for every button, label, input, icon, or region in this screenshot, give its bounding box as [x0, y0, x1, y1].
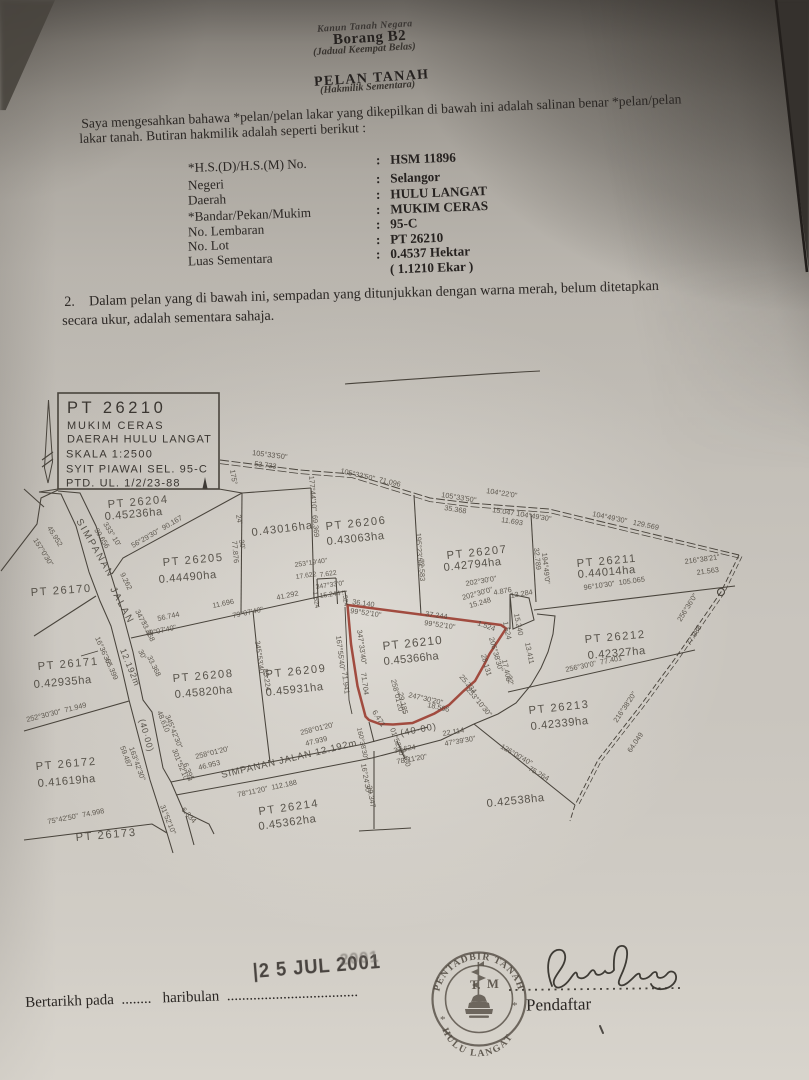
svg-text:M: M: [487, 977, 499, 991]
svg-text:*: *: [440, 1014, 446, 1026]
svg-text:*: *: [512, 1000, 518, 1012]
svg-text:HULU LANGAT: HULU LANGAT: [439, 1026, 515, 1059]
